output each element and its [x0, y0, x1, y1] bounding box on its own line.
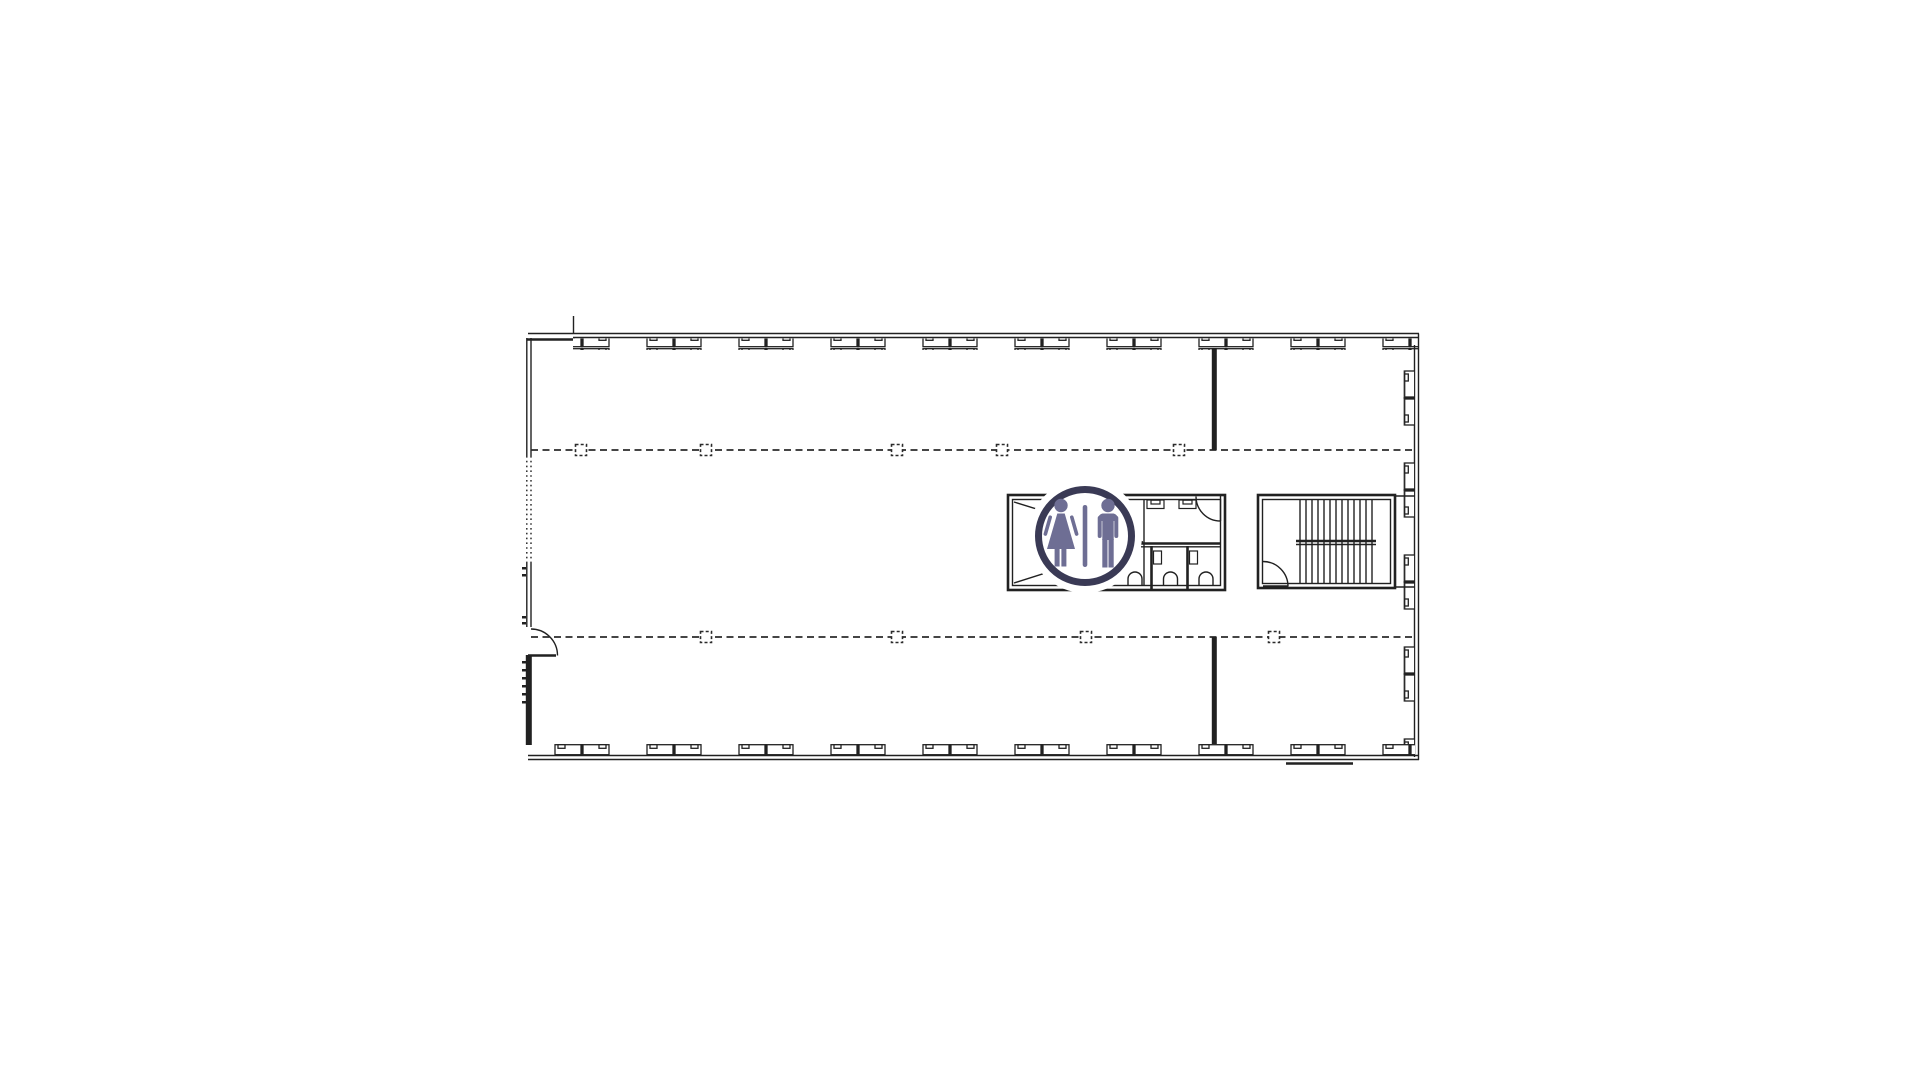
door-swing-arc — [531, 629, 558, 656]
wall-ticks — [522, 567, 526, 704]
lower-gridline — [531, 632, 1414, 643]
toilet — [1164, 572, 1178, 586]
floor-plan-page — [0, 0, 1920, 1080]
column-marker — [892, 445, 903, 456]
entry-door — [528, 629, 558, 656]
bottom-window-wall — [528, 744, 1419, 760]
interior-partition-walls — [1212, 348, 1217, 744]
unisex-restroom-icon[interactable] — [1028, 479, 1142, 593]
column-marker — [997, 445, 1008, 456]
column-marker — [1081, 632, 1092, 643]
column-marker — [1174, 445, 1185, 456]
sign-divider-bar — [1083, 505, 1088, 567]
column-marker — [576, 445, 587, 456]
stairwell-door — [1263, 562, 1288, 587]
column-marker — [701, 445, 712, 456]
sinks — [1147, 500, 1196, 509]
toilet-stalls — [1128, 546, 1213, 589]
right-window-wall — [1403, 334, 1419, 761]
left-wall — [522, 338, 558, 745]
stairwell — [1258, 495, 1415, 588]
top-window-wall — [527, 316, 1419, 350]
toilet — [1128, 572, 1142, 586]
upper-gridline — [531, 445, 1414, 456]
column-marker — [1269, 632, 1280, 643]
floor-plan-drawing — [0, 0, 1920, 1080]
column-marker — [701, 632, 712, 643]
door-swing-arc — [1263, 562, 1288, 587]
toilet — [1199, 572, 1213, 586]
column-marker — [892, 632, 903, 643]
